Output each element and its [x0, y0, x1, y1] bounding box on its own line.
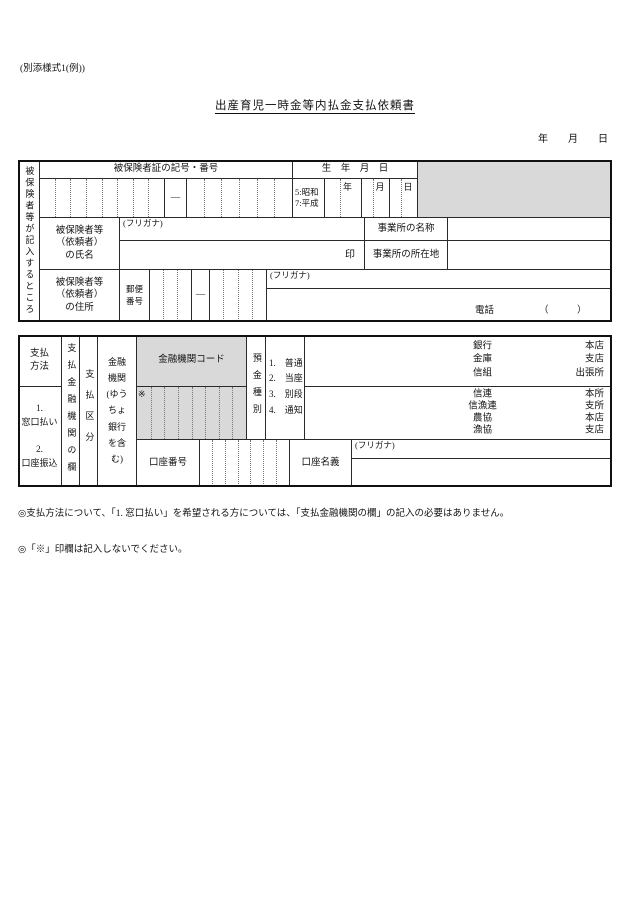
shaded-official-use-box	[418, 160, 612, 218]
digit-box[interactable]	[276, 440, 289, 486]
digit-group	[200, 440, 289, 486]
digit-box[interactable]	[178, 387, 192, 439]
bank-branches-2: 本所 支所 本店 支店	[585, 389, 604, 438]
cert-symbol-digits[interactable]	[40, 179, 165, 218]
year-label: 年	[343, 182, 352, 194]
digit-box[interactable]	[210, 270, 223, 321]
digit-box[interactable]	[148, 179, 164, 217]
office-address-label: 事業所の所在地	[365, 241, 448, 270]
cert-number-header: 被保険者証の記号・番号	[40, 160, 293, 179]
account-name-area: (フリガナ)	[352, 440, 612, 487]
postal-code-label: 郵便 番号	[120, 270, 150, 322]
digit-box[interactable]	[102, 179, 118, 217]
digit-box[interactable]	[70, 179, 86, 217]
digit-box[interactable]	[252, 270, 266, 321]
day-label: 日	[404, 182, 413, 194]
institution-code-header: 金融機関コード	[137, 335, 247, 387]
furigana-label: (フリガナ)	[267, 268, 313, 282]
account-name-label: 口座名義	[290, 440, 352, 487]
furigana-label: (フリガナ)	[352, 438, 398, 452]
pay-institution-column-label: 支払金融機関の欄	[65, 343, 77, 479]
form-reference: (別添様式1(例))	[20, 60, 85, 74]
institution-label: 金融 機関 (ゆう ちょ 銀行 を含 む)	[98, 335, 137, 487]
form-title: 出産育児一時金等内払金支払依頼書	[0, 97, 630, 113]
form-title-text: 出産育児一時金等内払金支払依頼書	[215, 100, 415, 114]
birthdate-header: 生 年 月 日	[293, 160, 418, 179]
digit-box[interactable]	[257, 179, 275, 217]
side-label: 被保険者等が記入するところ	[23, 166, 35, 316]
digit-box[interactable]	[117, 179, 133, 217]
digit-box[interactable]	[212, 440, 225, 486]
bank-types-1: 銀行 金庫 信組	[473, 340, 492, 381]
furigana-label: (フリガナ)	[120, 216, 166, 230]
digit-box[interactable]	[86, 179, 102, 217]
month-label: 月	[376, 182, 385, 194]
digit-box[interactable]	[238, 270, 252, 321]
office-address-field[interactable]	[448, 241, 612, 270]
office-name-label: 事業所の名称	[365, 218, 448, 241]
address-area: (フリガナ) 電話 （ ）	[267, 270, 612, 322]
postal-code-dash: ―	[192, 270, 210, 322]
date-line: 年 月 日	[538, 130, 608, 145]
digit-group	[150, 270, 191, 321]
digit-box[interactable]	[133, 179, 149, 217]
account-number-label: 口座番号	[137, 440, 200, 487]
digit-group	[40, 179, 164, 217]
digit-box[interactable]	[192, 387, 206, 439]
payment-method-options[interactable]: 1. 窓口払い 2. 口座振込	[18, 387, 62, 487]
institution-code-digits[interactable]: ※	[137, 387, 247, 440]
digit-box[interactable]	[250, 440, 263, 486]
postal-code-digits-1[interactable]	[150, 270, 192, 322]
digit-box[interactable]	[150, 270, 163, 321]
digit-box[interactable]	[151, 387, 165, 439]
office-name-field[interactable]	[448, 218, 612, 241]
account-furigana-field[interactable]: (フリガナ)	[352, 440, 611, 459]
digit-group	[210, 270, 266, 321]
birth-day-cell[interactable]: 日	[390, 179, 418, 218]
address-furigana-field[interactable]: (フリガナ)	[267, 270, 611, 289]
deposit-type-cell: 預金種別	[247, 335, 266, 440]
digit-box[interactable]	[204, 179, 222, 217]
digit-box[interactable]	[177, 270, 191, 321]
era-options[interactable]: 5:昭和 7:平成	[293, 179, 325, 218]
pay-category-cell: 支払区分	[80, 335, 98, 487]
note-star-field: ◎「※」印欄は記入しないでください。	[18, 541, 188, 555]
bank-types-2: 信連 信漁連 農協 漁協	[468, 389, 497, 438]
form-page: (別添様式1(例)) 出産育児一時金等内払金支払依頼書 年 月 日 被保険者等が…	[0, 0, 630, 912]
digit-box[interactable]	[40, 179, 55, 217]
digit-group	[187, 179, 292, 217]
birth-month-cell[interactable]: 月	[362, 179, 390, 218]
payment-method-label: 支払 方法	[18, 335, 62, 387]
address-field[interactable]: 電話 （ ）	[267, 289, 611, 321]
digit-box[interactable]	[205, 387, 219, 439]
digit-box[interactable]	[223, 270, 237, 321]
cert-number-digits[interactable]	[187, 179, 293, 218]
digit-box[interactable]	[187, 179, 204, 217]
side-label-cell: 被保険者等が記入するところ	[18, 160, 40, 322]
account-name-field[interactable]	[352, 459, 611, 486]
note-payment-method: ◎支払方法について、「1. 窓口払い」を希望される方については、「支払金融機関の…	[18, 505, 509, 519]
tel-parens[interactable]: （ ）	[539, 305, 587, 317]
insured-address-label: 被保険者等 （依頼者） の住所	[40, 270, 120, 322]
bank-branches-1: 本店 支店 出張所	[575, 340, 604, 381]
pay-institution-column-cell: 支払金融機関の欄	[62, 335, 80, 487]
deposit-type-label: 預金種別	[250, 353, 262, 421]
bank-type-row-2[interactable]: 信連 信漁連 農協 漁協 本所 支所 本店 支店	[305, 387, 612, 440]
postal-code-digits-2[interactable]	[210, 270, 267, 322]
deposit-type-options[interactable]: 1. 普通 2. 当座 3. 別段 4. 通知	[266, 335, 305, 440]
name-field[interactable]: 印	[120, 241, 365, 270]
digit-box[interactable]	[238, 440, 251, 486]
digit-box[interactable]	[225, 440, 238, 486]
pay-category-label: 支払区分	[83, 369, 95, 453]
bank-type-row-1[interactable]: 銀行 金庫 信組 本店 支店 出張所	[305, 335, 612, 387]
cert-number-dash: ―	[165, 179, 187, 218]
digit-box[interactable]	[219, 387, 233, 439]
name-furigana-field[interactable]: (フリガナ)	[120, 218, 365, 241]
digit-box[interactable]	[55, 179, 71, 217]
seal-mark: 印	[345, 249, 355, 262]
digit-box[interactable]	[200, 440, 212, 486]
tel-label: 電話	[475, 305, 494, 317]
star-mark: ※	[137, 387, 151, 439]
digit-box[interactable]	[263, 440, 276, 486]
birth-year-cell[interactable]: 年	[325, 179, 362, 218]
account-number-digits[interactable]	[200, 440, 290, 487]
digit-box[interactable]	[239, 179, 257, 217]
digit-box[interactable]	[232, 387, 246, 439]
digit-box[interactable]	[274, 179, 292, 217]
digit-box[interactable]	[163, 270, 177, 321]
insured-name-label: 被保険者等 （依頼者） の氏名	[40, 218, 120, 270]
digit-box[interactable]	[221, 179, 239, 217]
digit-box[interactable]	[164, 387, 178, 439]
digit-group: ※	[137, 387, 246, 439]
